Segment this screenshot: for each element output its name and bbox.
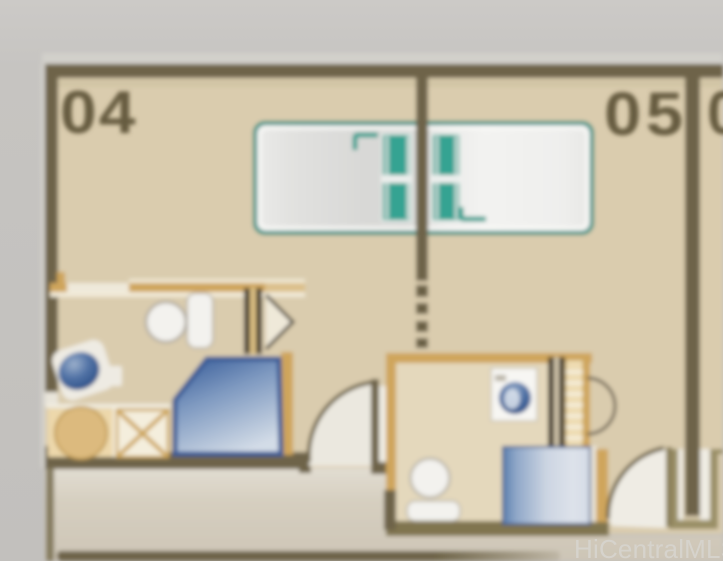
- svg-text:HiCentralMLS: HiCentralMLS: [574, 534, 723, 561]
- svg-text:05: 05: [604, 80, 687, 148]
- svg-text:0: 0: [707, 79, 723, 147]
- svg-text:04: 04: [60, 80, 138, 147]
